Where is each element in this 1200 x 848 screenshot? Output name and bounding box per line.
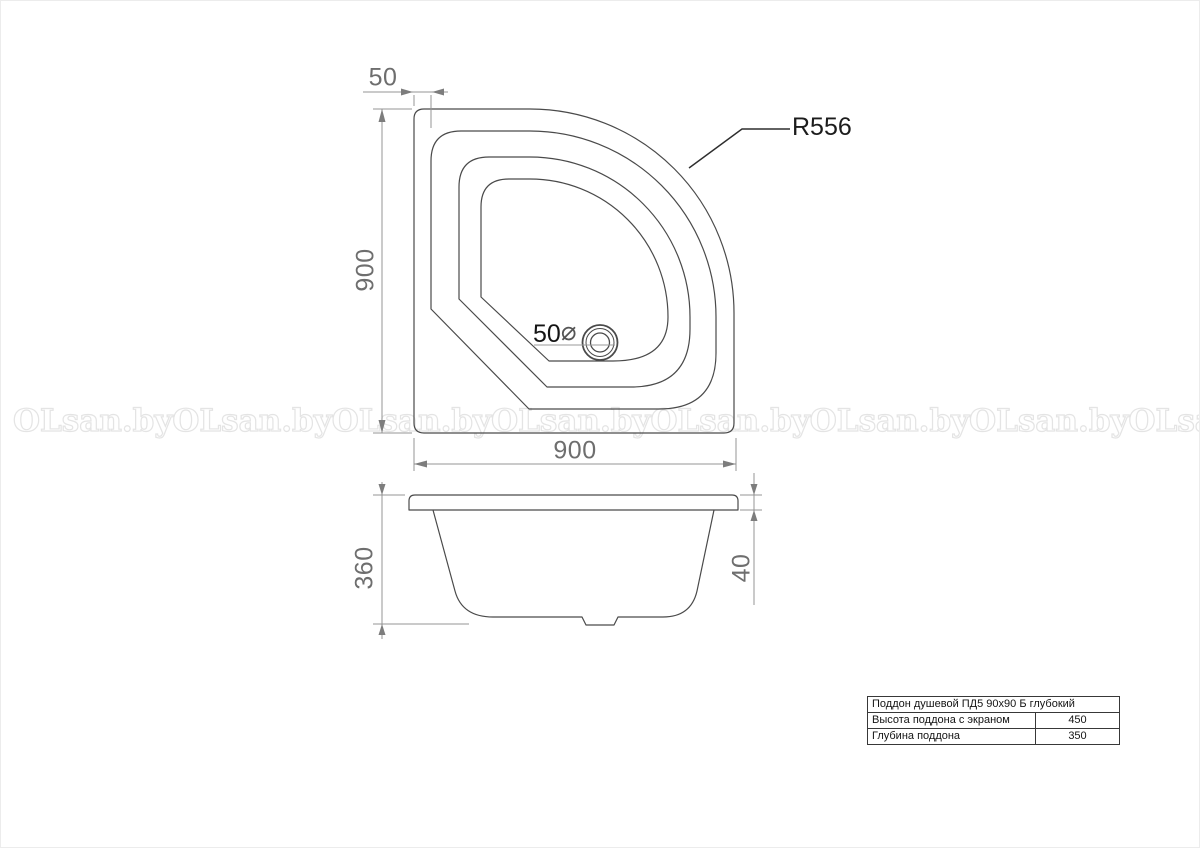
spec-table: Поддон душевой ПД5 90x90 Б глубокий Высо…	[867, 696, 1120, 745]
dimension-lines	[363, 89, 762, 640]
radius-leader-line	[689, 129, 790, 168]
spec-table-title-row: Поддон душевой ПД5 90x90 Б глубокий	[868, 697, 1120, 713]
dim-label-top-50: 50	[369, 64, 398, 93]
drain-diameter-value: 50	[533, 320, 561, 348]
spec-row-value: 450	[1036, 713, 1120, 729]
spec-table-title: Поддон душевой ПД5 90x90 Б глубокий	[868, 697, 1120, 713]
drain-icon	[583, 325, 618, 360]
spec-row-value: 350	[1036, 729, 1120, 745]
tray-slope-contour	[459, 157, 690, 387]
dim-label-side-40: 40	[728, 554, 757, 583]
diameter-symbol-icon: ⌀	[561, 316, 577, 346]
drain-diameter-label: 50⌀	[533, 318, 576, 349]
side-body-profile	[433, 510, 714, 625]
spec-row-label: Глубина поддона	[868, 729, 1036, 745]
side-rim-profile	[409, 495, 738, 510]
plan-view	[414, 109, 790, 433]
dim-label-left-900: 900	[352, 248, 381, 291]
side-view	[409, 495, 738, 625]
technical-drawing-canvas: OLsan.byOLsan.byOLsan.byOLsan.byOLsan.by…	[0, 0, 1200, 848]
table-row: Высота поддона с экраном 450	[868, 713, 1120, 729]
table-row: Глубина поддона 350	[868, 729, 1120, 745]
dim-top-50	[363, 89, 448, 129]
spec-row-label: Высота поддона с экраном	[868, 713, 1036, 729]
tray-rim-inner-contour	[431, 131, 716, 409]
dim-label-bottom-900: 900	[553, 437, 596, 466]
tray-outer-contour	[414, 109, 734, 433]
dim-side-360	[373, 482, 469, 639]
dim-side-40	[740, 473, 762, 605]
radius-callout-label: R556	[792, 113, 852, 142]
dim-label-side-360: 360	[351, 546, 380, 589]
